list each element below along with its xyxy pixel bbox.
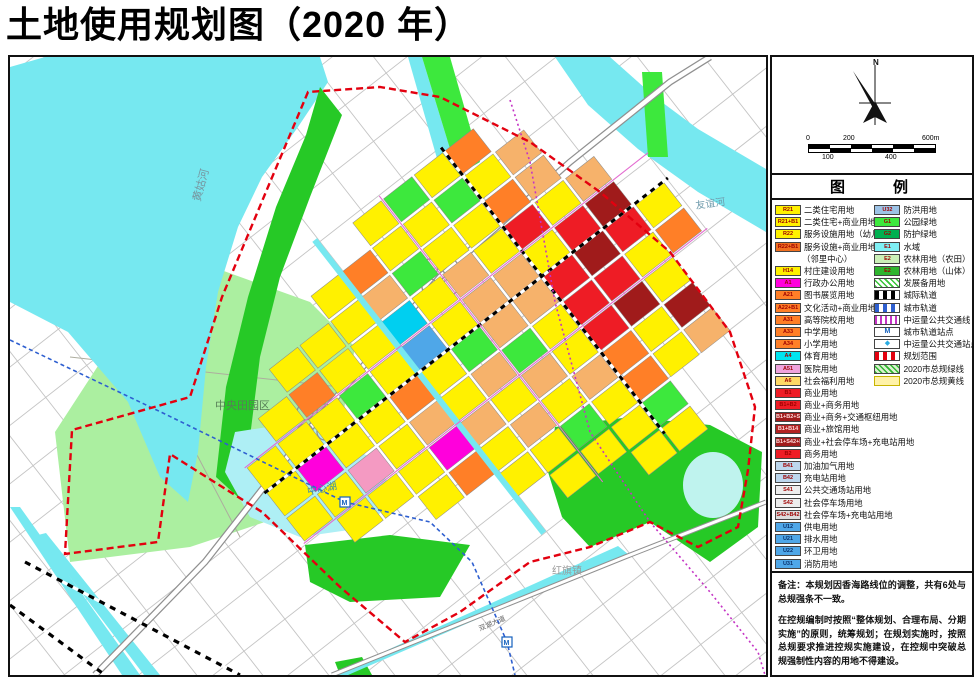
legend-row: B1+B2+S3商业+商务+交通枢纽用地 (775, 411, 874, 423)
legend-label: 2020市总规绿线 (903, 363, 964, 375)
legend-label: 高等院校用地 (804, 314, 854, 326)
legend-row: S42+B42社会停车场+充电站用地 (775, 509, 874, 521)
legend-label: 小学用地 (804, 338, 838, 350)
legend-swatch: B42 (775, 473, 801, 483)
legend-column-left: R21二类住宅用地R21+B1二类住宅+商业用地R22服务设施用地（幼儿园）R2… (775, 204, 874, 571)
legend-label: 商业+商务用地 (804, 399, 859, 411)
legend-label: 城市轨道站点 (903, 326, 953, 338)
legend-swatch (874, 315, 900, 325)
legend-row: M城市轨道站点 (874, 326, 970, 338)
legend-swatch: E2 (874, 254, 900, 264)
legend-swatch (874, 351, 900, 361)
legend-row: 城际轨道 (874, 289, 970, 301)
legend-label: 公共交通场站用地 (804, 484, 871, 496)
legend-row: R21二类住宅用地 (775, 204, 874, 216)
legend-swatch: B1+B2 (775, 400, 801, 410)
legend-row: 2020市总规黄线 (874, 375, 970, 387)
compass-scale-box: N 0200600m 100400 (772, 57, 972, 175)
note-paragraph-2: 在控规编制时按照“整体规划、合理布局、分期实施”的原则，统筹规划；在规划实施时，… (778, 614, 966, 668)
legend-row: S42社会停车场用地 (775, 497, 874, 509)
legend-swatch: G1 (874, 217, 900, 227)
legend-label: 防洪用地 (903, 204, 937, 216)
legend-swatch: R21+B1 (775, 217, 801, 227)
legend-label: 中学用地 (804, 326, 838, 338)
compass-icon: N (772, 57, 968, 131)
legend-swatch: ◆ (874, 339, 900, 349)
legend-label: 社会停车场用地 (804, 497, 863, 509)
legend-swatch: H14 (775, 266, 801, 276)
legend-label: 充电站用地 (804, 472, 846, 484)
legend-row: A51医院用地 (775, 362, 874, 374)
legend-row: A33中学用地 (775, 326, 874, 338)
legend-swatch: R21 (775, 205, 801, 215)
legend-label: 商业用地 (804, 387, 838, 399)
legend-label: 二类住宅用地 (804, 204, 854, 216)
legend-row: U22环卫用地 (775, 545, 874, 557)
legend-label: 中运量公共交通站点 (903, 338, 972, 350)
legend-row: R22+B1服务设施+商业用地 (775, 241, 874, 253)
legend-swatch (874, 303, 900, 313)
legend-row: A34小学用地 (775, 338, 874, 350)
legend-row: H14村庄建设用地 (775, 265, 874, 277)
legend-row: A21图书展览用地 (775, 289, 874, 301)
legend-swatch: E1 (874, 242, 900, 252)
legend-label: 排水用地 (804, 533, 838, 545)
legend-label: 发展备用地 (903, 277, 945, 289)
legend-swatch: B1+B2+S3 (775, 412, 801, 422)
compass-north-label: N (873, 58, 879, 67)
legend-row: ◆中运量公共交通站点 (874, 338, 970, 350)
legend-swatch (874, 290, 900, 300)
legend-swatch: A22+B1 (775, 303, 801, 313)
legend-swatch: B1 (775, 388, 801, 398)
scale-label: 200 (843, 135, 855, 142)
legend-swatch: G2 (874, 229, 900, 239)
hill-pond (683, 452, 743, 518)
legend-swatch (874, 278, 900, 288)
scale-bar: 0200600m 100400 (808, 135, 936, 165)
legend-swatch: S42 (775, 498, 801, 508)
legend-row: B1商业用地 (775, 387, 874, 399)
svg-text:M: M (342, 500, 348, 507)
scale-label: 100 (822, 154, 834, 161)
legend-swatch: A6 (775, 376, 801, 386)
legend-row: 发展备用地 (874, 277, 970, 289)
legend-row: B41加油加气用地 (775, 460, 874, 472)
legend-row: B1+S42+B42商业+社会停车场+充电站用地 (775, 436, 874, 448)
legend-swatch: B1+S42+B42 (775, 437, 801, 447)
land-use-plan-sheet: 土地使用规划图（2020 年） MM黄姑河友谊河中央田园区中心湖红旗镇双湖大道 … (0, 0, 980, 685)
legend-label: 图书展览用地 (804, 289, 854, 301)
legend-row: A1行政办公用地 (775, 277, 874, 289)
legend-row: U21排水用地 (775, 533, 874, 545)
legend-title: 图 例 (772, 175, 972, 200)
metro-station-icon: M (340, 497, 350, 507)
legend-swatch: B1+B14 (775, 424, 801, 434)
svg-text:M: M (504, 640, 510, 647)
map-frame: MM黄姑河友谊河中央田园区中心湖红旗镇双湖大道 (8, 55, 768, 677)
legend-row: R21+B1二类住宅+商业用地 (775, 216, 874, 228)
legend-swatch: B41 (775, 461, 801, 471)
note-paragraph-1: 备注：本规划因香海路线位的调整，共有6处与总规强条不一致。 (778, 579, 966, 606)
legend-swatch: U21 (775, 534, 801, 544)
legend-swatch (874, 376, 900, 386)
legend-label: 行政办公用地 (804, 277, 854, 289)
legend-swatch (874, 364, 900, 374)
legend-swatch: A33 (775, 327, 801, 337)
legend-row: A31高等院校用地 (775, 314, 874, 326)
legend-swatch: U22 (775, 546, 801, 556)
legend-row: S41公共交通场站用地 (775, 484, 874, 496)
legend-row: 中运量公共交通线 (874, 314, 970, 326)
legend-label: 中运量公共交通线 (903, 314, 970, 326)
planning-map: MM黄姑河友谊河中央田园区中心湖红旗镇双湖大道 (10, 57, 766, 675)
page-title: 土地使用规划图（2020 年） (6, 0, 471, 48)
legend-label: 水域 (903, 241, 920, 253)
metro-station-icon: M (502, 637, 512, 647)
legend-label: 城市轨道 (903, 302, 937, 314)
legend-label: 2020市总规黄线 (903, 375, 964, 387)
legend-row: B42充电站用地 (775, 472, 874, 484)
legend-label: 消防用地 (804, 558, 838, 570)
legend-swatch: S42+B42 (775, 510, 801, 520)
legend-row: 2020市总规绿线 (874, 362, 970, 374)
legend-label: 公园绿地 (903, 216, 937, 228)
legend-row: U31消防用地 (775, 557, 874, 569)
legend-row: A22+B1文化活动+商业用地 (775, 302, 874, 314)
notes: 备注：本规划因香海路线位的调整，共有6处与总规强条不一致。 在控规编制时按照“整… (772, 571, 972, 675)
legend-row: E1水域 (874, 241, 970, 253)
legend-label: 村庄建设用地 (804, 265, 854, 277)
legend-swatch: M (874, 327, 900, 337)
legend-row: B1+B2商业+商务用地 (775, 399, 874, 411)
legend-swatch: A31 (775, 315, 801, 325)
map-label-central-farm-area: 中央田园区 (215, 399, 270, 412)
legend-row: U12供电用地 (775, 521, 874, 533)
legend-swatch: A21 (775, 290, 801, 300)
legend-swatch: U12 (775, 522, 801, 532)
legend-label: 社会福利用地 (804, 375, 854, 387)
legend-swatch: A4 (775, 351, 801, 361)
legend-label: 供电用地 (804, 521, 838, 533)
legend-label: 服务设施+商业用地 (804, 241, 876, 253)
legend-swatch: A34 (775, 339, 801, 349)
legend-label: 二类住宅+商业用地 (804, 216, 876, 228)
legend-label: 防护绿地 (903, 228, 937, 240)
legend-panel: N 0200600m 100400 图 例 R21二类住宅用地R21+B1二类住… (770, 55, 974, 677)
legend-label-continued: （邻里中心） (775, 253, 874, 265)
legend-swatch: U32 (874, 205, 900, 215)
legend-swatch: R22 (775, 229, 801, 239)
legend-row: 规划范围 (874, 350, 970, 362)
legend-row: 城市轨道 (874, 302, 970, 314)
legend-row: A4体育用地 (775, 350, 874, 362)
scale-label: 600m (922, 135, 940, 142)
legend-swatch: R22+B1 (775, 242, 801, 252)
legend-row: R22服务设施用地（幼儿园） (775, 228, 874, 240)
legend-list: R21二类住宅用地R21+B1二类住宅+商业用地R22服务设施用地（幼儿园）R2… (772, 200, 972, 571)
legend-row: E2农林用地（山体） (874, 265, 970, 277)
legend-label: 农林用地（农田） (903, 253, 970, 265)
legend-row: B2商务用地 (775, 448, 874, 460)
legend-label: 规划范围 (903, 350, 937, 362)
legend-label: 加油加气用地 (804, 460, 854, 472)
legend-swatch: S41 (775, 485, 801, 495)
legend-row: U32防洪用地 (874, 204, 970, 216)
legend-swatch: U31 (775, 559, 801, 569)
scale-label: 0 (806, 135, 810, 142)
legend-label: 医院用地 (804, 363, 838, 375)
legend-swatch: A1 (775, 278, 801, 288)
legend-row: E2农林用地（农田） (874, 253, 970, 265)
legend-swatch: A51 (775, 364, 801, 374)
legend-swatch: E2 (874, 266, 900, 276)
legend-label: 农林用地（山体） (903, 265, 970, 277)
legend-row: G2防护绿地 (874, 228, 970, 240)
legend-swatch: B2 (775, 449, 801, 459)
scale-label: 400 (885, 154, 897, 161)
legend-label: 商业+旅馆用地 (804, 423, 859, 435)
legend-row: G1公园绿地 (874, 216, 970, 228)
legend-row: A6社会福利用地 (775, 375, 874, 387)
map-label-hongqi-town: 红旗镇 (552, 564, 582, 577)
legend-column-right: U32防洪用地G1公园绿地G2防护绿地E1水域E2农林用地（农田）E2农林用地（… (874, 204, 970, 571)
legend-label: 文化活动+商业用地 (804, 302, 876, 314)
legend-label: 商务用地 (804, 448, 838, 460)
legend-label: 城际轨道 (903, 289, 937, 301)
legend-label: 体育用地 (804, 350, 838, 362)
legend-row: B1+B14商业+旅馆用地 (775, 423, 874, 435)
legend-label: 环卫用地 (804, 545, 838, 557)
